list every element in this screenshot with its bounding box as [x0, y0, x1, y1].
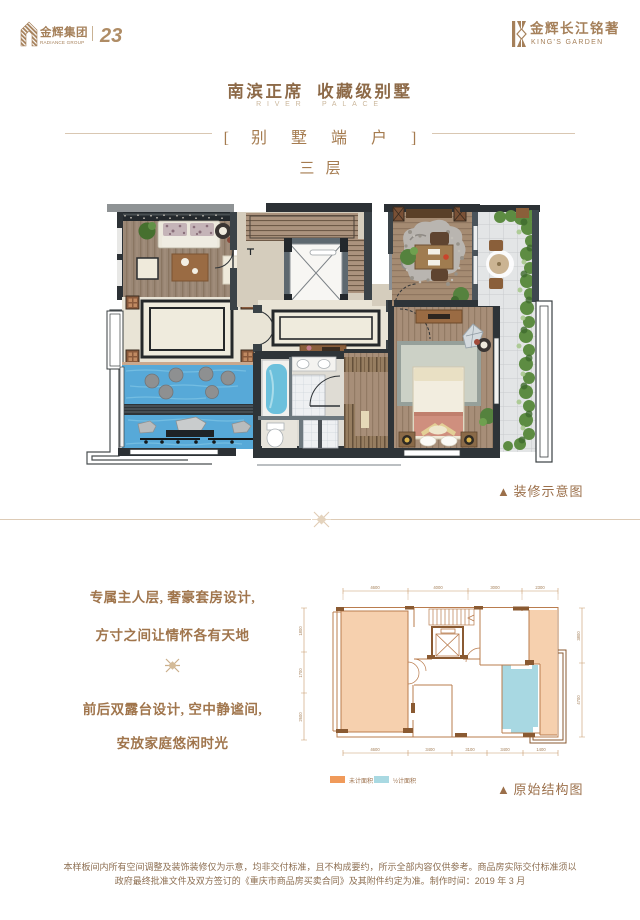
svg-text:1400: 1400 [536, 747, 546, 752]
svg-text:3000: 3000 [490, 585, 500, 590]
svg-text:3400: 3400 [500, 747, 510, 752]
svg-text:2600: 2600 [298, 712, 303, 722]
svg-text:4600: 4600 [370, 585, 380, 590]
svg-text:3100: 3100 [465, 747, 475, 752]
svg-text:2300: 2300 [535, 585, 545, 590]
svg-text:4600: 4600 [370, 747, 380, 752]
svg-text:金辉集团: 金辉集团 [39, 25, 88, 39]
svg-text:4000: 4000 [433, 585, 443, 590]
svg-text:4700: 4700 [576, 695, 581, 705]
svg-text:1800: 1800 [298, 626, 303, 636]
svg-text:3400: 3400 [425, 747, 435, 752]
svg-text:23: 23 [99, 25, 122, 47]
svg-text:RADIANCE GROUP: RADIANCE GROUP [40, 40, 84, 45]
svg-text:KING'S GARDEN: KING'S GARDEN [531, 39, 604, 46]
svg-text:3800: 3800 [576, 631, 581, 641]
svg-text:1700: 1700 [298, 668, 303, 678]
svg-text:金辉长江铭著: 金辉长江铭著 [529, 20, 620, 36]
